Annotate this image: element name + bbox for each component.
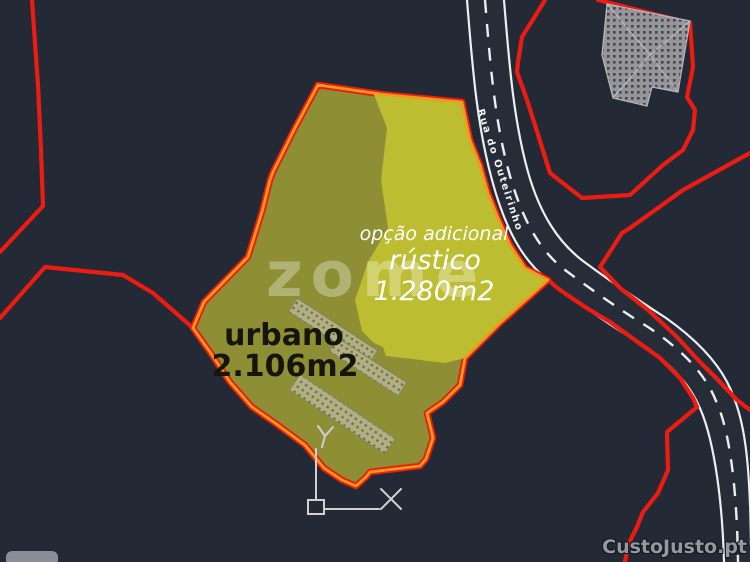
bottom-left-chip: [6, 551, 58, 562]
ucs-origin-box: [308, 500, 324, 514]
custojusto-watermark: CustoJusto.pt: [602, 536, 747, 558]
boundary-left-upper: [0, 0, 43, 252]
x-axis-glyph: [381, 489, 401, 509]
label-urban-area: 2.106m2: [211, 349, 358, 384]
cad-plan-canvas: opção adicional rústico 1.280m2 urbano 2…: [0, 0, 750, 562]
label-urban-name: urbano: [224, 318, 344, 353]
neighbor-building: [602, 4, 690, 106]
boundary-left-lower: [0, 267, 193, 328]
zome-watermark: zome: [266, 238, 486, 311]
